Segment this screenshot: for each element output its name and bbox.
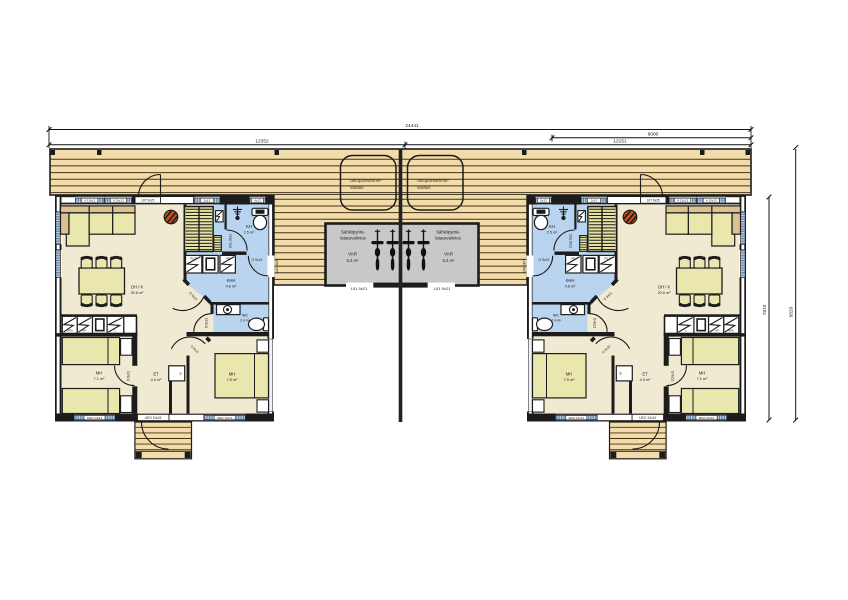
svg-text:24441: 24441 — [405, 123, 419, 129]
svg-text:L01 9x21: L01 9x21 — [351, 286, 368, 291]
svg-text:latausvalmius: latausvalmius — [435, 236, 460, 241]
svg-text:VAR: VAR — [444, 252, 454, 257]
svg-text:JK: JK — [619, 372, 623, 375]
svg-text:varaus: varaus — [417, 185, 431, 190]
svg-text:2x13: 2x13 — [204, 199, 211, 203]
svg-text:O 8x21: O 8x21 — [671, 371, 675, 382]
svg-text:VAR: VAR — [348, 252, 358, 257]
svg-text:PP: PP — [571, 256, 575, 260]
svg-text:7.9 m²: 7.9 m² — [227, 378, 238, 382]
svg-text:MH: MH — [229, 372, 236, 377]
svg-text:4.9 m²: 4.9 m² — [640, 378, 651, 382]
svg-text:MSO 14x13: MSO 14x13 — [87, 416, 103, 420]
svg-text:10T 9x25: 10T 9x25 — [141, 199, 154, 203]
svg-text:OSL 8x21: OSL 8x21 — [229, 234, 233, 248]
svg-text:4.9 m²: 4.9 m² — [151, 378, 162, 382]
svg-text:varaus: varaus — [350, 185, 364, 190]
svg-text:MH: MH — [699, 371, 706, 376]
svg-text:MH: MH — [96, 371, 103, 376]
svg-text:WC: WC — [242, 314, 249, 318]
svg-text:2x13: 2x13 — [591, 199, 598, 203]
svg-text:OH / K: OH / K — [131, 285, 144, 290]
svg-text:UEO 10x21: UEO 10x21 — [145, 416, 162, 420]
svg-text:MSO 14x13: MSO 14x13 — [699, 416, 715, 420]
svg-text:O 9x21: O 9x21 — [252, 258, 263, 262]
svg-text:UEO 10x21: UEO 10x21 — [639, 416, 656, 420]
svg-text:AP: AP — [715, 329, 719, 333]
svg-text:PP: PP — [226, 256, 230, 260]
svg-text:A 15x13: A 15x13 — [677, 199, 688, 203]
svg-text:7.1 m²: 7.1 m² — [697, 377, 708, 381]
svg-text:KHH: KHH — [227, 278, 236, 283]
svg-text:APA: APA — [728, 329, 734, 333]
svg-text:OH / K: OH / K — [658, 285, 671, 290]
svg-text:APA: APA — [67, 329, 73, 333]
svg-text:10T 9x25: 10T 9x25 — [647, 199, 660, 203]
svg-text:O 8x21: O 8x21 — [127, 371, 131, 382]
svg-text:latausvalmius: latausvalmius — [340, 236, 365, 241]
svg-text:O 8x21: O 8x21 — [593, 318, 597, 329]
svg-text:2.4 m²: 2.4 m² — [551, 319, 561, 323]
svg-text:5.2 m²: 5.2 m² — [443, 258, 455, 263]
svg-text:20.6 m²: 20.6 m² — [658, 291, 672, 295]
svg-text:ET: ET — [153, 372, 159, 377]
svg-text:KH: KH — [549, 224, 555, 229]
svg-text:A 15x13: A 15x13 — [706, 199, 717, 203]
svg-text:KH: KH — [246, 224, 252, 229]
svg-text:9520: 9520 — [789, 306, 795, 317]
svg-text:OSL 8x21: OSL 8x21 — [569, 234, 573, 248]
svg-text:Sähköpyörä-: Sähköpyörä- — [341, 230, 365, 235]
svg-text:12352: 12352 — [255, 138, 269, 144]
svg-text:ET: ET — [642, 372, 648, 377]
svg-text:2.4 m²: 2.4 m² — [240, 319, 250, 323]
svg-text:WC: WC — [553, 314, 560, 318]
svg-text:7.1 m²: 7.1 m² — [94, 377, 105, 381]
svg-text:Ulkoporeamme-: Ulkoporeamme- — [350, 178, 383, 183]
svg-text:5.2 m²: 5.2 m² — [347, 258, 359, 263]
svg-text:O 9x21: O 9x21 — [539, 258, 550, 262]
svg-text:20.6 m²: 20.6 m² — [131, 291, 145, 295]
svg-text:7.9 m²: 7.9 m² — [564, 378, 575, 382]
svg-text:PILP: PILP — [604, 256, 611, 260]
svg-text:A 15x13: A 15x13 — [84, 199, 95, 203]
svg-text:LUO 9x21: LUO 9x21 — [522, 259, 526, 274]
svg-text:KHH: KHH — [566, 278, 575, 283]
svg-text:Sähköpyörä-: Sähköpyörä- — [436, 230, 460, 235]
svg-text:MSO 14x13: MSO 14x13 — [217, 416, 233, 420]
svg-text:2.5 m²: 2.5 m² — [547, 231, 558, 235]
svg-text:L01 9x21: L01 9x21 — [434, 286, 451, 291]
svg-text:A 15x13: A 15x13 — [113, 199, 124, 203]
svg-text:6000: 6000 — [648, 131, 659, 137]
svg-text:MH: MH — [566, 372, 573, 377]
svg-text:AP: AP — [82, 329, 86, 333]
svg-text:6x13: 6x13 — [254, 199, 261, 203]
svg-text:7810: 7810 — [762, 304, 768, 315]
svg-text:MSO 14x13: MSO 14x13 — [569, 416, 585, 420]
svg-text:4.6 m²: 4.6 m² — [565, 285, 576, 289]
svg-text:O 8x21: O 8x21 — [205, 318, 209, 329]
svg-text:2.5 m²: 2.5 m² — [244, 231, 255, 235]
svg-text:LUO 9x21: LUO 9x21 — [275, 259, 279, 274]
svg-text:JK: JK — [179, 372, 183, 375]
svg-text:4.6 m²: 4.6 m² — [226, 285, 237, 289]
svg-text:12151: 12151 — [613, 138, 627, 144]
svg-text:PILP: PILP — [190, 256, 197, 260]
svg-text:6x13: 6x13 — [540, 199, 547, 203]
svg-text:Ulkoporeamme-: Ulkoporeamme- — [417, 178, 450, 183]
